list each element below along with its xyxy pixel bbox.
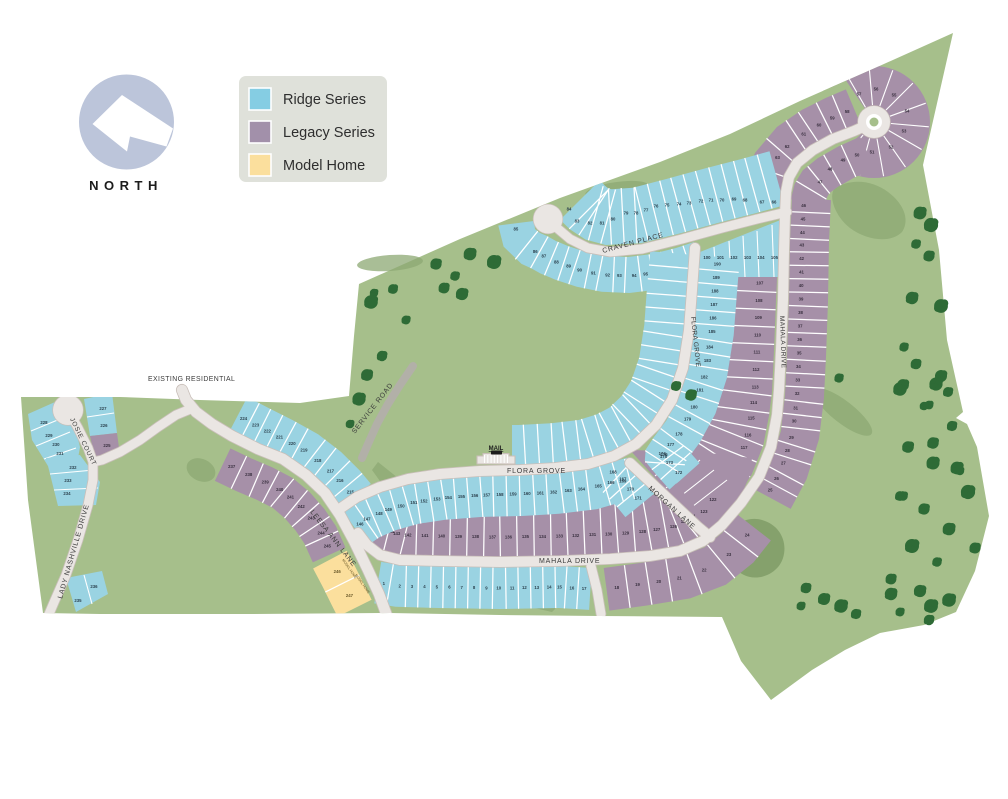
svg-text:105: 105 xyxy=(771,255,779,260)
svg-text:103: 103 xyxy=(744,255,752,260)
svg-text:160: 160 xyxy=(524,491,532,496)
svg-text:178: 178 xyxy=(675,431,683,436)
svg-text:247: 247 xyxy=(346,593,354,598)
svg-text:23: 23 xyxy=(727,552,732,557)
svg-text:234: 234 xyxy=(63,491,71,496)
svg-text:42: 42 xyxy=(799,256,804,261)
svg-text:229: 229 xyxy=(45,433,53,438)
svg-text:15: 15 xyxy=(557,585,562,590)
svg-text:139: 139 xyxy=(455,534,463,539)
svg-text:101: 101 xyxy=(717,255,725,260)
svg-text:MAHALA DRIVE: MAHALA DRIVE xyxy=(539,558,600,565)
svg-text:114: 114 xyxy=(750,400,758,405)
svg-text:12: 12 xyxy=(522,585,527,590)
svg-text:155: 155 xyxy=(458,494,466,499)
svg-text:162: 162 xyxy=(550,490,558,495)
svg-text:NORTH: NORTH xyxy=(89,178,163,193)
svg-text:163: 163 xyxy=(565,488,573,493)
svg-text:56: 56 xyxy=(874,87,879,92)
svg-text:44: 44 xyxy=(800,230,805,235)
svg-text:EXISTING RESIDENTIAL: EXISTING RESIDENTIAL xyxy=(148,376,235,383)
svg-text:227: 227 xyxy=(99,406,107,411)
svg-text:242: 242 xyxy=(298,504,306,509)
svg-text:22: 22 xyxy=(702,567,707,572)
svg-text:68: 68 xyxy=(743,198,748,203)
svg-text:28: 28 xyxy=(785,448,790,453)
svg-text:79: 79 xyxy=(624,211,629,216)
svg-text:188: 188 xyxy=(711,289,719,294)
svg-text:33: 33 xyxy=(795,378,800,383)
svg-text:32: 32 xyxy=(795,391,800,396)
svg-text:226: 226 xyxy=(100,423,108,428)
svg-text:172: 172 xyxy=(675,470,683,475)
svg-text:49: 49 xyxy=(841,158,846,163)
svg-text:130: 130 xyxy=(605,532,613,537)
svg-text:Legacy Series: Legacy Series xyxy=(283,125,375,141)
svg-text:126: 126 xyxy=(670,524,678,529)
svg-text:90: 90 xyxy=(577,267,582,272)
svg-text:142: 142 xyxy=(404,533,412,538)
svg-text:224: 224 xyxy=(240,416,248,421)
svg-text:127: 127 xyxy=(653,527,661,532)
svg-text:186: 186 xyxy=(709,315,717,320)
svg-text:78: 78 xyxy=(634,211,639,216)
svg-text:128: 128 xyxy=(639,529,647,534)
svg-text:170: 170 xyxy=(627,487,635,492)
svg-text:20: 20 xyxy=(656,579,661,584)
svg-text:169: 169 xyxy=(619,478,627,483)
svg-text:245: 245 xyxy=(324,543,332,548)
svg-text:92: 92 xyxy=(605,273,610,278)
svg-text:91: 91 xyxy=(591,270,596,275)
svg-text:164: 164 xyxy=(578,487,586,492)
svg-text:152: 152 xyxy=(420,498,428,503)
svg-text:182: 182 xyxy=(701,375,709,380)
svg-text:51: 51 xyxy=(870,150,875,155)
svg-text:74: 74 xyxy=(677,202,682,207)
svg-text:230: 230 xyxy=(52,442,60,447)
svg-text:136: 136 xyxy=(505,534,513,539)
svg-text:174: 174 xyxy=(659,451,667,456)
svg-text:235: 235 xyxy=(74,598,82,603)
svg-text:115: 115 xyxy=(748,416,756,421)
svg-text:50: 50 xyxy=(855,153,860,158)
svg-text:55: 55 xyxy=(892,93,897,98)
svg-text:46: 46 xyxy=(801,203,806,208)
svg-text:180: 180 xyxy=(691,405,699,410)
svg-text:153: 153 xyxy=(433,496,441,501)
svg-text:222: 222 xyxy=(264,428,272,433)
svg-text:57: 57 xyxy=(857,92,862,97)
svg-text:241: 241 xyxy=(287,495,295,500)
svg-text:31: 31 xyxy=(793,405,798,410)
svg-text:36: 36 xyxy=(797,337,802,342)
svg-text:225: 225 xyxy=(103,443,111,448)
svg-text:129: 129 xyxy=(622,530,630,535)
svg-text:159: 159 xyxy=(510,492,518,497)
svg-text:112: 112 xyxy=(753,367,761,372)
svg-text:37: 37 xyxy=(798,324,803,329)
svg-text:184: 184 xyxy=(706,344,714,349)
svg-text:122: 122 xyxy=(709,497,717,502)
svg-text:233: 233 xyxy=(64,478,72,483)
svg-text:34: 34 xyxy=(796,364,801,369)
svg-text:21: 21 xyxy=(677,576,682,581)
svg-text:39: 39 xyxy=(799,296,804,301)
svg-text:95: 95 xyxy=(643,271,648,276)
svg-text:179: 179 xyxy=(684,417,692,422)
svg-text:66: 66 xyxy=(772,200,777,205)
svg-text:81: 81 xyxy=(600,221,605,226)
svg-text:86: 86 xyxy=(533,249,538,254)
svg-text:70: 70 xyxy=(720,198,725,203)
svg-text:35: 35 xyxy=(797,351,802,356)
svg-text:240: 240 xyxy=(276,487,284,492)
svg-text:171: 171 xyxy=(635,496,643,501)
svg-text:38: 38 xyxy=(798,310,803,315)
svg-text:88: 88 xyxy=(554,259,559,264)
svg-text:237: 237 xyxy=(228,464,236,469)
svg-text:52: 52 xyxy=(889,145,894,150)
svg-text:138: 138 xyxy=(472,534,480,539)
svg-text:Model Home: Model Home xyxy=(283,158,365,174)
svg-text:13: 13 xyxy=(534,585,539,590)
svg-text:151: 151 xyxy=(410,500,418,505)
svg-text:107: 107 xyxy=(756,280,764,285)
svg-text:238: 238 xyxy=(245,472,253,477)
svg-text:77: 77 xyxy=(644,208,649,213)
svg-text:75: 75 xyxy=(665,203,670,208)
svg-text:165: 165 xyxy=(595,484,603,489)
svg-text:218: 218 xyxy=(314,458,322,463)
svg-text:132: 132 xyxy=(572,533,580,538)
svg-text:24: 24 xyxy=(745,533,750,538)
svg-text:123: 123 xyxy=(700,509,708,514)
svg-text:59: 59 xyxy=(830,116,835,121)
svg-text:89: 89 xyxy=(566,264,571,269)
svg-text:143: 143 xyxy=(393,531,401,536)
svg-text:185: 185 xyxy=(708,329,716,334)
svg-text:108: 108 xyxy=(755,298,763,303)
svg-text:69: 69 xyxy=(732,197,737,202)
svg-text:149: 149 xyxy=(385,507,393,512)
svg-text:109: 109 xyxy=(755,315,763,320)
svg-text:61: 61 xyxy=(801,131,806,136)
svg-text:87: 87 xyxy=(542,254,547,259)
svg-text:140: 140 xyxy=(438,534,446,539)
svg-text:141: 141 xyxy=(421,533,429,538)
svg-text:181: 181 xyxy=(696,388,704,393)
svg-text:111: 111 xyxy=(754,350,761,355)
svg-text:16: 16 xyxy=(570,585,575,590)
svg-text:217: 217 xyxy=(327,468,335,473)
svg-text:71: 71 xyxy=(709,198,714,203)
svg-text:177: 177 xyxy=(667,442,675,447)
svg-text:220: 220 xyxy=(289,441,297,446)
svg-text:47: 47 xyxy=(818,180,823,185)
svg-text:231: 231 xyxy=(56,451,64,456)
svg-text:190: 190 xyxy=(714,261,722,266)
svg-text:17: 17 xyxy=(582,586,587,591)
svg-text:25: 25 xyxy=(768,488,773,493)
svg-text:147: 147 xyxy=(363,516,371,521)
svg-text:48: 48 xyxy=(828,167,833,172)
svg-text:166: 166 xyxy=(607,480,615,485)
svg-text:29: 29 xyxy=(789,435,794,440)
svg-text:93: 93 xyxy=(617,273,622,278)
svg-text:135: 135 xyxy=(522,534,530,539)
svg-text:133: 133 xyxy=(556,534,564,539)
svg-text:189: 189 xyxy=(713,275,721,280)
svg-text:110: 110 xyxy=(754,333,762,338)
svg-text:63: 63 xyxy=(775,155,780,160)
svg-text:131: 131 xyxy=(589,532,597,537)
svg-text:76: 76 xyxy=(654,204,659,209)
svg-text:94: 94 xyxy=(632,273,637,278)
svg-text:219: 219 xyxy=(300,448,308,453)
svg-text:54: 54 xyxy=(905,109,910,114)
svg-text:53: 53 xyxy=(902,129,907,134)
svg-text:173: 173 xyxy=(666,460,674,465)
svg-text:223: 223 xyxy=(252,423,260,428)
svg-text:187: 187 xyxy=(710,302,718,307)
svg-text:10: 10 xyxy=(496,586,501,591)
svg-text:18: 18 xyxy=(614,585,619,590)
svg-text:157: 157 xyxy=(483,492,491,497)
svg-text:60: 60 xyxy=(817,122,822,127)
svg-text:137: 137 xyxy=(489,534,497,539)
svg-text:116: 116 xyxy=(744,433,752,438)
svg-text:67: 67 xyxy=(760,200,765,205)
svg-text:72: 72 xyxy=(699,199,704,204)
svg-text:84: 84 xyxy=(567,207,572,212)
svg-text:26: 26 xyxy=(774,476,779,481)
svg-text:11: 11 xyxy=(510,585,515,590)
svg-text:62: 62 xyxy=(785,144,790,149)
svg-text:146: 146 xyxy=(356,522,364,527)
svg-text:85: 85 xyxy=(514,227,519,232)
svg-text:43: 43 xyxy=(800,243,805,248)
svg-text:19: 19 xyxy=(635,582,640,587)
svg-text:228: 228 xyxy=(40,420,48,425)
svg-text:58: 58 xyxy=(845,109,850,114)
svg-text:134: 134 xyxy=(539,534,547,539)
svg-text:117: 117 xyxy=(741,445,749,450)
svg-text:102: 102 xyxy=(730,255,738,260)
svg-text:216: 216 xyxy=(336,478,344,483)
svg-text:246: 246 xyxy=(334,569,342,574)
svg-text:14: 14 xyxy=(547,585,552,590)
svg-text:82: 82 xyxy=(588,221,593,226)
svg-text:80: 80 xyxy=(611,217,616,222)
svg-text:41: 41 xyxy=(799,270,804,275)
svg-text:156: 156 xyxy=(471,493,479,498)
svg-text:158: 158 xyxy=(496,492,504,497)
svg-text:113: 113 xyxy=(752,384,760,389)
svg-text:232: 232 xyxy=(69,465,77,470)
svg-text:236: 236 xyxy=(90,584,98,589)
svg-text:161: 161 xyxy=(537,490,545,495)
svg-text:104: 104 xyxy=(757,255,765,260)
svg-text:30: 30 xyxy=(792,419,797,424)
svg-text:154: 154 xyxy=(445,495,453,500)
svg-text:168: 168 xyxy=(610,469,618,474)
svg-text:150: 150 xyxy=(398,503,406,508)
svg-text:100: 100 xyxy=(703,255,711,260)
svg-text:Ridge Series: Ridge Series xyxy=(283,92,366,108)
svg-text:83: 83 xyxy=(575,219,580,224)
svg-text:239: 239 xyxy=(262,479,270,484)
svg-text:40: 40 xyxy=(799,283,804,288)
svg-text:221: 221 xyxy=(276,435,284,440)
svg-text:148: 148 xyxy=(376,511,384,516)
svg-text:FLORA GROVE: FLORA GROVE xyxy=(507,468,566,475)
svg-text:183: 183 xyxy=(704,358,712,363)
svg-text:45: 45 xyxy=(801,216,806,221)
svg-text:27: 27 xyxy=(781,461,786,466)
svg-text:73: 73 xyxy=(687,201,692,206)
